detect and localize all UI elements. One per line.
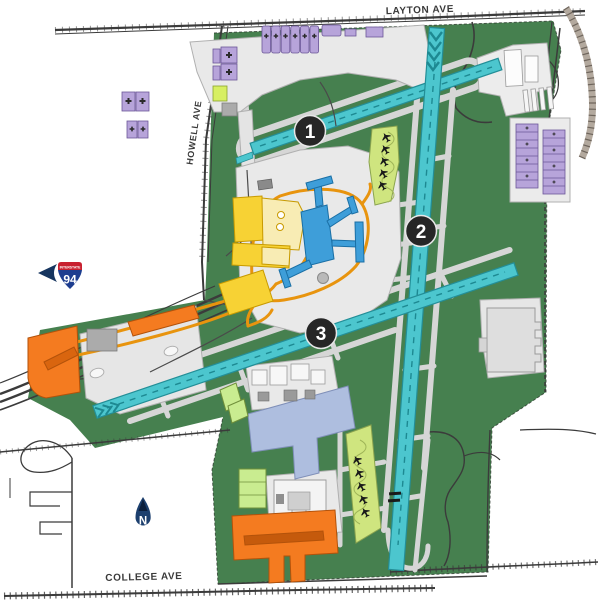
fuel-tank [318, 273, 329, 284]
interstate-label: INTERSTATE [60, 265, 82, 269]
layton-ave-label: LAYTON AVE [386, 4, 455, 17]
college-ave-label: COLLEGE AVE [105, 571, 182, 584]
runway-marker-2[interactable]: 2 [406, 216, 437, 247]
runway-marker-2-label: 2 [416, 222, 427, 243]
airport-map-svg: 1 2 3 INTERSTATE 94 N LAYTON AVE COLLEGE… [0, 0, 600, 602]
compass-north: N [136, 497, 151, 528]
runway-marker-1[interactable]: 1 [295, 116, 326, 147]
east-building-annex [479, 338, 487, 352]
interstate-number: 94 [63, 273, 77, 287]
compass-north-label: N [139, 516, 147, 528]
runway-marker-3-label: 3 [316, 324, 327, 345]
howell-ave-label: HOWELL AVE [185, 100, 204, 166]
interstate-94-shield: INTERSTATE 94 [57, 261, 84, 291]
terminal-roof-building [258, 179, 273, 190]
runway-marker-1-label: 1 [305, 122, 316, 143]
airport-map: 1 2 3 INTERSTATE 94 N LAYTON AVE COLLEGE… [0, 0, 600, 602]
runway-marker-3[interactable]: 3 [306, 318, 337, 349]
west-gray-building [87, 329, 117, 351]
east-building [487, 308, 541, 372]
interstate-arrow-icon [38, 264, 57, 282]
